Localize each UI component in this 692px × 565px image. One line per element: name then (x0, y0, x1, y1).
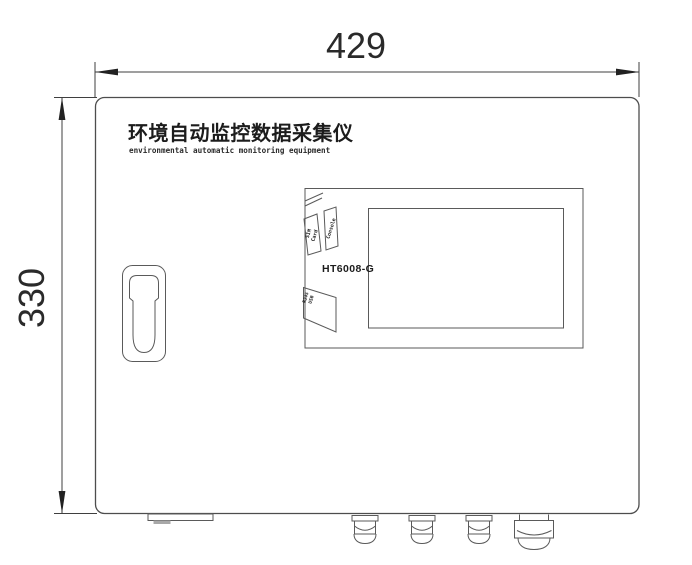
device-title: 环境自动监控数据采集仪 (128, 121, 354, 145)
gland-thread-arc (355, 526, 376, 530)
gland-thread-arc (469, 526, 490, 530)
arrow-left-icon (95, 69, 118, 76)
sim-card-slot-sticker: SIM Card (304, 214, 321, 255)
cable-gland-4-large (515, 515, 554, 550)
gland-body (469, 521, 490, 534)
dimension-drawing-svg: 429 330 环境自动监控数据采集仪 environmental automa… (0, 0, 692, 565)
gland-flange (409, 516, 435, 522)
display-panel: Console SIM Card HT6008-G RJ45 USB (302, 189, 583, 349)
gland-dome (518, 538, 550, 550)
gland-body (355, 521, 376, 534)
device-subtitle: environmental automatic monitoring equip… (129, 146, 330, 155)
handle-recess-outline (123, 266, 166, 362)
model-number-label: HT6008-G (322, 263, 374, 275)
gland-flange (352, 516, 378, 522)
mounting-tab-foot (154, 521, 171, 525)
screen-outline (369, 209, 564, 329)
cable-gland-2 (409, 516, 435, 544)
gland-body (412, 521, 433, 534)
gland-thread-arc (517, 531, 552, 536)
arrow-right-icon (616, 69, 639, 76)
slot-edge-line-1 (305, 193, 323, 201)
door-handle (123, 266, 166, 362)
console-port-label: Console (326, 218, 338, 240)
enclosure-outline (96, 98, 640, 514)
gland-dome (411, 534, 433, 544)
top-dimension: 429 (95, 25, 639, 97)
gland-thread-arc (412, 526, 433, 530)
title-block: 环境自动监控数据采集仪 environmental automatic moni… (128, 121, 354, 155)
mounting-tab (148, 514, 213, 524)
height-dimension-label: 330 (11, 268, 52, 328)
cable-gland-3 (466, 516, 492, 544)
left-dimension: 330 (11, 98, 97, 514)
handle-grip-outline (130, 276, 159, 353)
arrow-up-icon (59, 98, 66, 121)
slot-edge-line-2 (305, 198, 322, 206)
gland-dome (354, 534, 376, 544)
mounting-tab-outline (148, 514, 213, 521)
rj45-usb-port-panel: RJ45 USB (302, 288, 336, 333)
console-port-sticker: Console (324, 207, 338, 250)
gland-dome (468, 534, 490, 544)
width-dimension-label: 429 (326, 25, 386, 66)
gland-flange (466, 516, 492, 522)
arrow-down-icon (59, 491, 66, 514)
drawing-canvas: 429 330 环境自动监控数据采集仪 environmental automa… (0, 0, 692, 565)
cable-gland-1 (352, 516, 378, 544)
